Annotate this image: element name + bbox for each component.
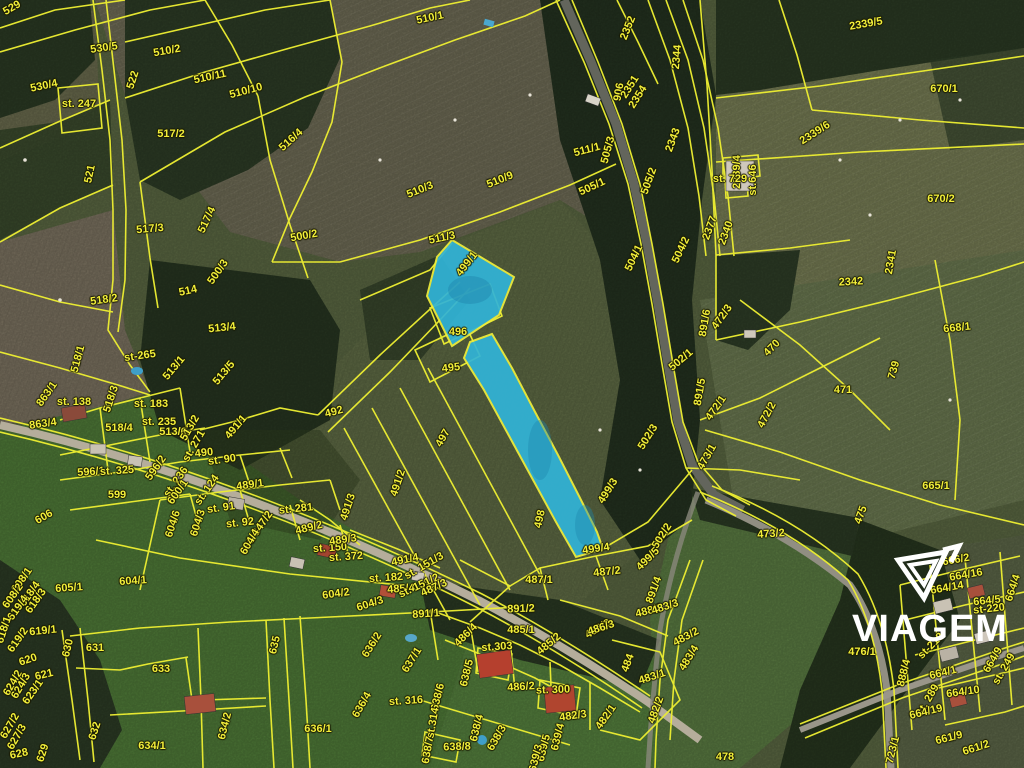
map-canvas[interactable]: 529530/5510/2530/4st. 247522510/11510/10… xyxy=(0,0,1024,768)
viagem-logo-icon xyxy=(845,538,1015,608)
satellite-map xyxy=(0,0,1024,768)
viagem-watermark: VIAGEM xyxy=(845,538,1015,648)
viagem-brand-text: VIAGEM xyxy=(845,610,1015,648)
